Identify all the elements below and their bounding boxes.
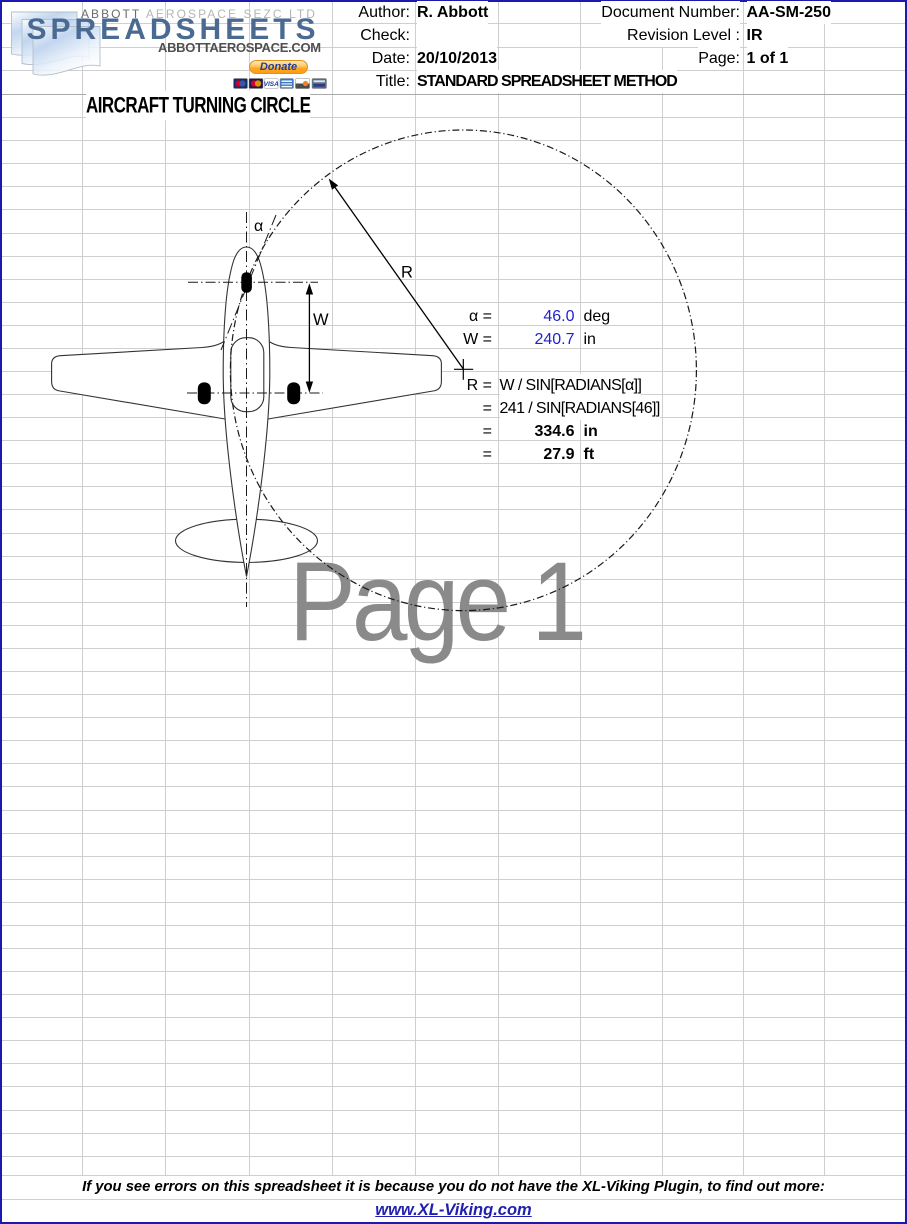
svg-text:W: W [313, 311, 329, 329]
svg-text:α: α [254, 218, 263, 235]
svg-text:R: R [401, 264, 413, 282]
